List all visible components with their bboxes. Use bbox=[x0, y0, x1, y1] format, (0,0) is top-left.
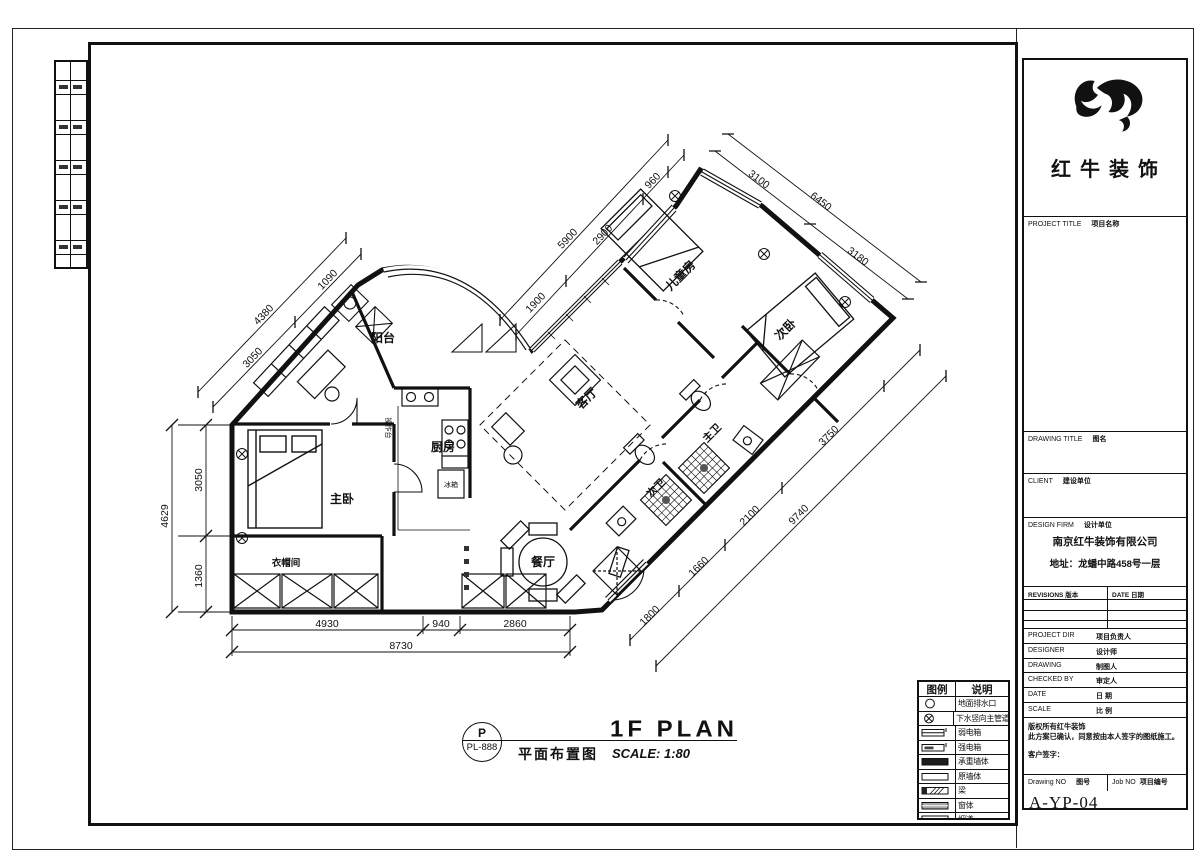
checked-by-row: CHECKED BY审定人 bbox=[1024, 673, 1186, 688]
legend-table: 图例 说明 地面排水口 下水竖向主管道 弱电箱 强电箱 承重墙体 原墙体 bbox=[917, 680, 1010, 820]
revisions-en: REVISIONS bbox=[1028, 592, 1063, 599]
dim-label: 3180 bbox=[845, 245, 871, 269]
room-label: 主卧 bbox=[330, 491, 354, 506]
entry-cabinet bbox=[593, 547, 641, 595]
firm-name: 南京红牛装饰有限公司 bbox=[1024, 534, 1186, 549]
title-block: 红牛装饰 PROJECT TITLE项目名称 DRAWING TITLE图名 C… bbox=[1022, 58, 1188, 810]
wardrobe-cells bbox=[234, 574, 546, 608]
dim-label: 3050 bbox=[240, 345, 265, 370]
pipe-markers bbox=[237, 191, 851, 544]
note-line: 此方案已确认，同意按由本人签字的图纸施工。 bbox=[1028, 732, 1179, 742]
legend-row: 下水竖向主管道 bbox=[919, 712, 1008, 727]
plan-title-cn: 平面布置图 bbox=[518, 744, 598, 764]
dim-label: 3100 bbox=[746, 168, 772, 192]
master-bed bbox=[248, 430, 322, 528]
dimension-lines bbox=[166, 134, 946, 672]
drawing-title-en: DRAWING TITLE bbox=[1028, 436, 1082, 443]
design-firm-cn: 设计单位 bbox=[1084, 522, 1112, 529]
legend-row: 承重墙体 bbox=[919, 755, 1008, 770]
beam-dashed bbox=[480, 340, 650, 510]
dim-label: 2860 bbox=[503, 618, 527, 630]
dim-label: 1660 bbox=[686, 554, 711, 579]
design-firm-section: DESIGN FIRM设计单位 南京红牛装饰有限公司 地址：龙蟠中路458号一层 bbox=[1024, 518, 1186, 587]
window-icon bbox=[920, 800, 954, 811]
dim-label: 3750 bbox=[816, 423, 841, 448]
basin-second bbox=[606, 506, 636, 536]
legend-row: 强电箱 bbox=[919, 741, 1008, 756]
rev-date-en: DATE bbox=[1112, 592, 1129, 599]
dim-label: 3050 bbox=[193, 468, 205, 492]
project-title-section: PROJECT TITLE项目名称 bbox=[1024, 217, 1186, 432]
dim-label: 4629 bbox=[159, 504, 171, 528]
client-cn: 建设单位 bbox=[1063, 478, 1091, 485]
note-line: 客户签字： bbox=[1028, 750, 1064, 760]
logo-section: 红牛装饰 bbox=[1024, 60, 1186, 217]
drawing-no-section: Drawing NO图号 Job NO项目编号 A-YP-04 bbox=[1024, 775, 1186, 819]
dim-label: 8730 bbox=[389, 640, 413, 652]
window-bands bbox=[384, 169, 874, 352]
dim-label: 1800 bbox=[637, 603, 662, 628]
dim-label: 940 bbox=[432, 618, 450, 630]
dim-label: 960 bbox=[642, 170, 663, 191]
rev-date-cn: 日期 bbox=[1131, 592, 1144, 599]
legend-row: 原墙体 bbox=[919, 770, 1008, 785]
drain-dot bbox=[662, 496, 670, 504]
project-title-en: PROJECT TITLE bbox=[1028, 221, 1081, 228]
date-row: DATE日 期 bbox=[1024, 688, 1186, 703]
dimension-labels: 4930 940 2860 8730 3050 1360 4629 3050 1… bbox=[159, 168, 871, 652]
dim-label: 2100 bbox=[737, 503, 762, 528]
room-label: 衣帽间 bbox=[272, 557, 301, 569]
original-wall-icon bbox=[920, 771, 954, 782]
room-label: 厨房 bbox=[431, 439, 455, 454]
room-label: 客厅 bbox=[572, 384, 600, 412]
room-label: 阳台 bbox=[371, 330, 395, 345]
drain-dot bbox=[700, 464, 708, 472]
drawing-title-section: DRAWING TITLE图名 bbox=[1024, 432, 1186, 474]
load-bearing-wall-icon bbox=[920, 756, 954, 767]
floor-drain-icon bbox=[920, 698, 954, 709]
toilet-second bbox=[624, 434, 660, 470]
legend-row: 地面排水口 bbox=[919, 697, 1008, 712]
second-bed bbox=[746, 273, 854, 377]
door-arcs bbox=[331, 300, 818, 600]
red-bull-logo-icon bbox=[1059, 70, 1151, 146]
strong-current-box-icon bbox=[920, 742, 954, 753]
legend-header-desc: 说明 bbox=[956, 682, 1008, 696]
legend-row: 弱电箱 bbox=[919, 726, 1008, 741]
reference-letter: P bbox=[463, 726, 501, 740]
drawing-number: A-YP-04 bbox=[1029, 793, 1098, 813]
revisions-section: REVISIONS 版本 DATE 日期 bbox=[1024, 587, 1186, 629]
dim-label: 1900 bbox=[523, 290, 548, 315]
fixture-label: 操作台 bbox=[384, 418, 393, 439]
weak-current-box-icon bbox=[920, 727, 954, 738]
dim-label: 4930 bbox=[315, 618, 339, 630]
dim-label: 2900 bbox=[590, 222, 615, 247]
dim-label: 6450 bbox=[808, 190, 834, 214]
company-name: 红牛装饰 bbox=[1032, 153, 1186, 182]
fixture-label: 冰箱 bbox=[444, 480, 458, 489]
drawing-by-row: DRAWING制图人 bbox=[1024, 659, 1186, 674]
legend-header-symbol: 图例 bbox=[919, 682, 956, 696]
beam-icon bbox=[920, 785, 954, 796]
job-no-cn: 项目编号 bbox=[1140, 779, 1168, 786]
room-label: 次卧 bbox=[771, 315, 799, 343]
drawing-sheet: 阳台 厨房 主卧 衣帽间 餐厅 客厅 儿童房 次卧 主卫 次卫 操作台 冰箱 4… bbox=[0, 0, 1200, 860]
second-bedroom-closet bbox=[761, 340, 820, 400]
room-label: 主卫 bbox=[700, 421, 724, 445]
firm-address: 地址：龙蟠中路458号一层 bbox=[1024, 556, 1186, 570]
drawing-no-en: Drawing NO bbox=[1028, 779, 1066, 786]
drawing-title-cn: 图名 bbox=[1092, 436, 1106, 443]
plan-scale: SCALE: 1:80 bbox=[612, 746, 690, 761]
toilet-master bbox=[680, 380, 716, 416]
drawing-no-cn: 图号 bbox=[1076, 779, 1090, 786]
client-section: CLIENT建设单位 bbox=[1024, 474, 1186, 518]
main-drain-pipe-icon bbox=[919, 713, 953, 724]
room-label: 餐厅 bbox=[531, 554, 555, 569]
flue-icon bbox=[920, 814, 954, 820]
revisions-cn: 版本 bbox=[1065, 592, 1078, 599]
project-dir-row: PROJECT DIR项目负责人 bbox=[1024, 629, 1186, 644]
dim-label: 1360 bbox=[193, 564, 205, 588]
job-no-en: Job NO bbox=[1112, 779, 1136, 786]
note-line: 版权所有红牛装饰 bbox=[1028, 722, 1086, 732]
reference-number: PL-888 bbox=[463, 742, 501, 753]
legend-row: 烟道 bbox=[919, 813, 1008, 820]
client-en: CLIENT bbox=[1028, 478, 1053, 485]
designer-row: DESIGNER设计师 bbox=[1024, 644, 1186, 659]
notes-section: 版权所有红牛装饰 此方案已确认，同意按由本人签字的图纸施工。 客户签字： bbox=[1024, 718, 1186, 775]
scale-row: SCALE比 例 bbox=[1024, 703, 1186, 718]
plan-title-en: 1F PLAN bbox=[520, 717, 738, 744]
kitchen-fixtures bbox=[398, 388, 470, 530]
design-firm-en: DESIGN FIRM bbox=[1028, 522, 1074, 529]
room-label: 儿童房 bbox=[661, 257, 698, 294]
project-title-cn: 项目名称 bbox=[1091, 221, 1119, 228]
legend-row: 窗体 bbox=[919, 799, 1008, 814]
reference-bubble: P PL-888 bbox=[462, 722, 502, 762]
legend-row: 梁 bbox=[919, 784, 1008, 799]
